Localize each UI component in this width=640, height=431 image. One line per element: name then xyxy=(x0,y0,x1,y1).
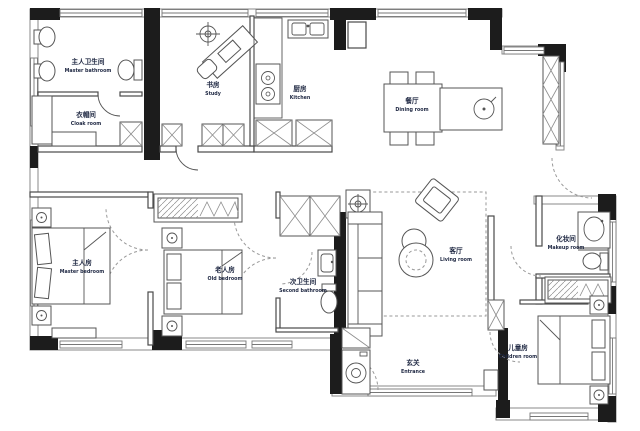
toilet-icon xyxy=(583,253,608,270)
floor-plan-page: 主人卫生间 Master bathroom 衣帽间 Cloak room 书房 … xyxy=(0,0,640,431)
room-makeup xyxy=(545,212,611,303)
armchair-icon xyxy=(414,178,459,223)
double-bed-icon xyxy=(32,228,110,304)
nightstand-icon xyxy=(162,228,182,248)
nightstand-icon xyxy=(32,208,51,227)
kitchen-label-zh: 厨房 xyxy=(293,84,307,93)
kitchen-label-en: Kitchen xyxy=(290,95,311,101)
children-room-label-en: Children room xyxy=(499,354,537,360)
living-room-label-en: Living room xyxy=(440,257,472,263)
room-study xyxy=(196,22,258,80)
stove-icon xyxy=(256,64,280,104)
room-living xyxy=(346,178,486,336)
nightstand-icon xyxy=(162,316,182,336)
wall-hung-toilet-icon xyxy=(34,61,55,81)
nightstand-icon xyxy=(32,306,51,325)
room-children xyxy=(538,296,610,404)
washing-machine-icon xyxy=(342,350,370,394)
children-room-label-zh: 儿童房 xyxy=(507,343,528,352)
wall-hung-toilet-icon xyxy=(34,27,55,47)
master-bedroom-label-zh: 主人房 xyxy=(72,258,92,267)
floor-plan: 主人卫生间 Master bathroom 衣帽间 Cloak room 书房 … xyxy=(0,0,640,431)
room-kitchen xyxy=(254,18,328,118)
second-bathroom-label-zh: 次卫生间 xyxy=(290,277,317,286)
room-old-bedroom xyxy=(154,194,242,336)
study-label-en: Study xyxy=(205,91,222,97)
study-label-zh: 书房 xyxy=(206,80,220,89)
sofa-icon xyxy=(348,212,382,336)
old-bedroom-label-en: Old bedroom xyxy=(208,276,243,282)
master-bedroom-label-en: Master bedroom xyxy=(60,269,105,275)
makeup-room-label-zh: 化妆间 xyxy=(556,234,576,243)
round-chair-icon xyxy=(399,229,433,277)
nightstand-icon xyxy=(590,296,608,314)
interior-walls xyxy=(30,16,610,345)
makeup-room-label-en: Makeup room xyxy=(548,245,585,251)
sink-icon xyxy=(318,250,336,276)
wardrobe-icon xyxy=(154,194,242,222)
single-bed-icon xyxy=(538,316,610,384)
cloak-room-label-zh: 衣帽间 xyxy=(76,110,96,119)
ceiling-light-icon xyxy=(196,22,220,46)
vanity-sink-icon xyxy=(578,212,610,248)
double-bed-icon xyxy=(164,250,242,314)
room-master-bedroom xyxy=(32,208,110,325)
entrance-label-zh: 玄关 xyxy=(406,358,420,367)
entrance-area xyxy=(342,328,370,394)
toilet-icon xyxy=(118,60,142,80)
master-bathroom-label-en: Master bathroom xyxy=(65,68,112,74)
living-room-label-zh: 客厅 xyxy=(448,246,463,255)
second-bathroom-label-en: Second bathroom xyxy=(279,288,327,294)
cloak-room-label-en: Cloak room xyxy=(71,121,102,127)
master-bathroom-label-zh: 主人卫生间 xyxy=(72,57,105,66)
dining-room-label-zh: 餐厅 xyxy=(405,96,419,105)
island-counter-icon xyxy=(440,88,502,130)
kitchen-sink-icon xyxy=(288,20,328,38)
entrance-label-en: Entrance xyxy=(401,369,426,375)
dining-room-label-en: Dining room xyxy=(395,107,428,113)
nightstand-icon xyxy=(590,386,608,404)
old-bedroom-label-zh: 老人房 xyxy=(214,265,235,274)
